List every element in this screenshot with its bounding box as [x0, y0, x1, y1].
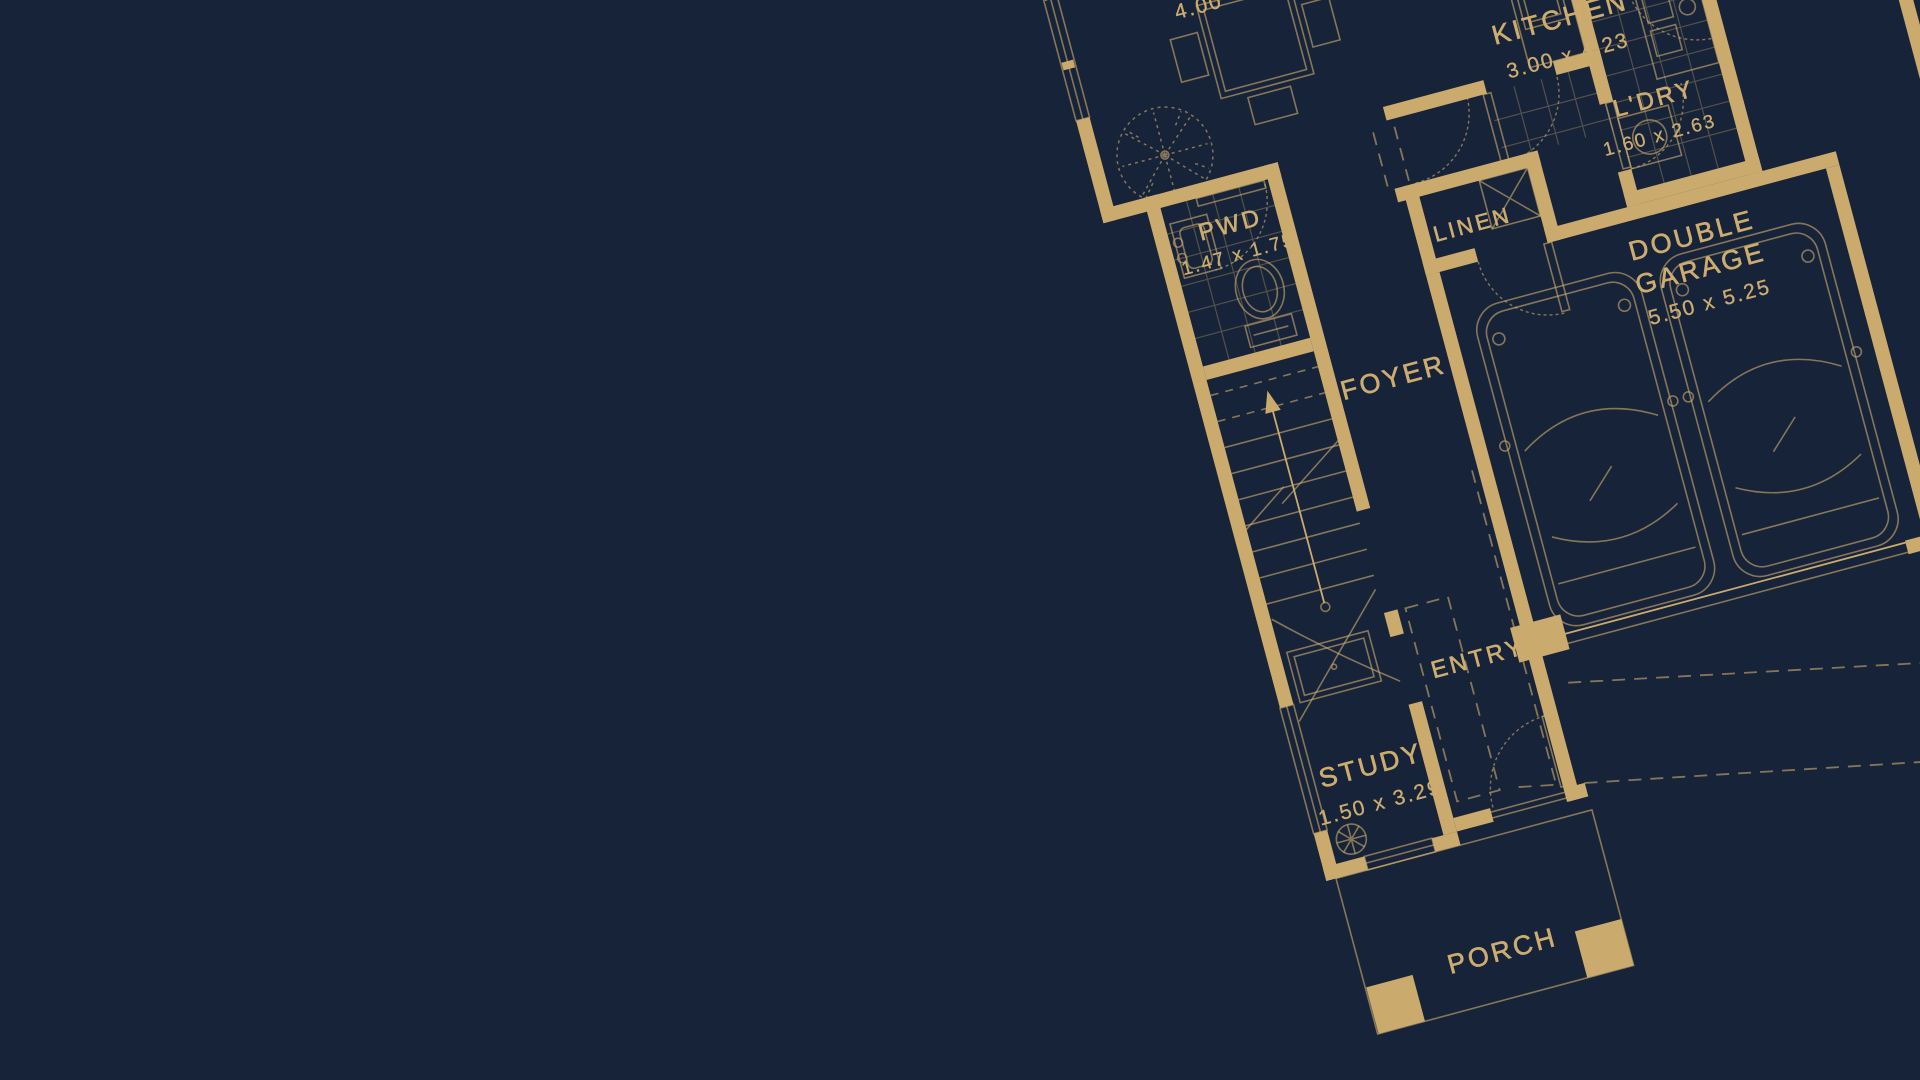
foyer-label: FOYER — [1337, 349, 1449, 406]
hero-background: 4.00 KITCHEN 3.00 x 4.23 L'DRY 1.60 x 2.… — [0, 0, 1920, 1080]
linen-label: LINEN — [1431, 202, 1515, 247]
ceiling-fan-symbol — [1333, 821, 1370, 858]
walls — [1004, 0, 1920, 893]
entry-niche-dashed — [1405, 597, 1499, 802]
floor-plan-rotated-group: 4.00 KITCHEN 3.00 x 4.23 L'DRY 1.60 x 2.… — [1004, 0, 1920, 1048]
porch-slab — [1336, 810, 1634, 1034]
garage-door — [1548, 543, 1908, 648]
meals-dims: 4.00 — [1172, 0, 1225, 24]
floor-plan: 4.00 KITCHEN 3.00 x 4.23 L'DRY 1.60 x 2.… — [0, 0, 1920, 1080]
winder-arc — [1272, 591, 1400, 709]
toilet-symbol — [1229, 254, 1297, 348]
bulkhead-dashes — [1373, 127, 1409, 187]
driveway-dashed-line — [1568, 569, 1920, 772]
entry-label: ENTRY — [1428, 633, 1528, 684]
porch-pier — [1575, 919, 1634, 978]
staircase-symbol — [1200, 364, 1417, 725]
laundry-label: L'DRY — [1610, 75, 1697, 123]
driveway-dashed-line-2 — [1519, 672, 1920, 874]
porch-label: PORCH — [1444, 922, 1560, 980]
entry-threshold — [1491, 792, 1568, 818]
